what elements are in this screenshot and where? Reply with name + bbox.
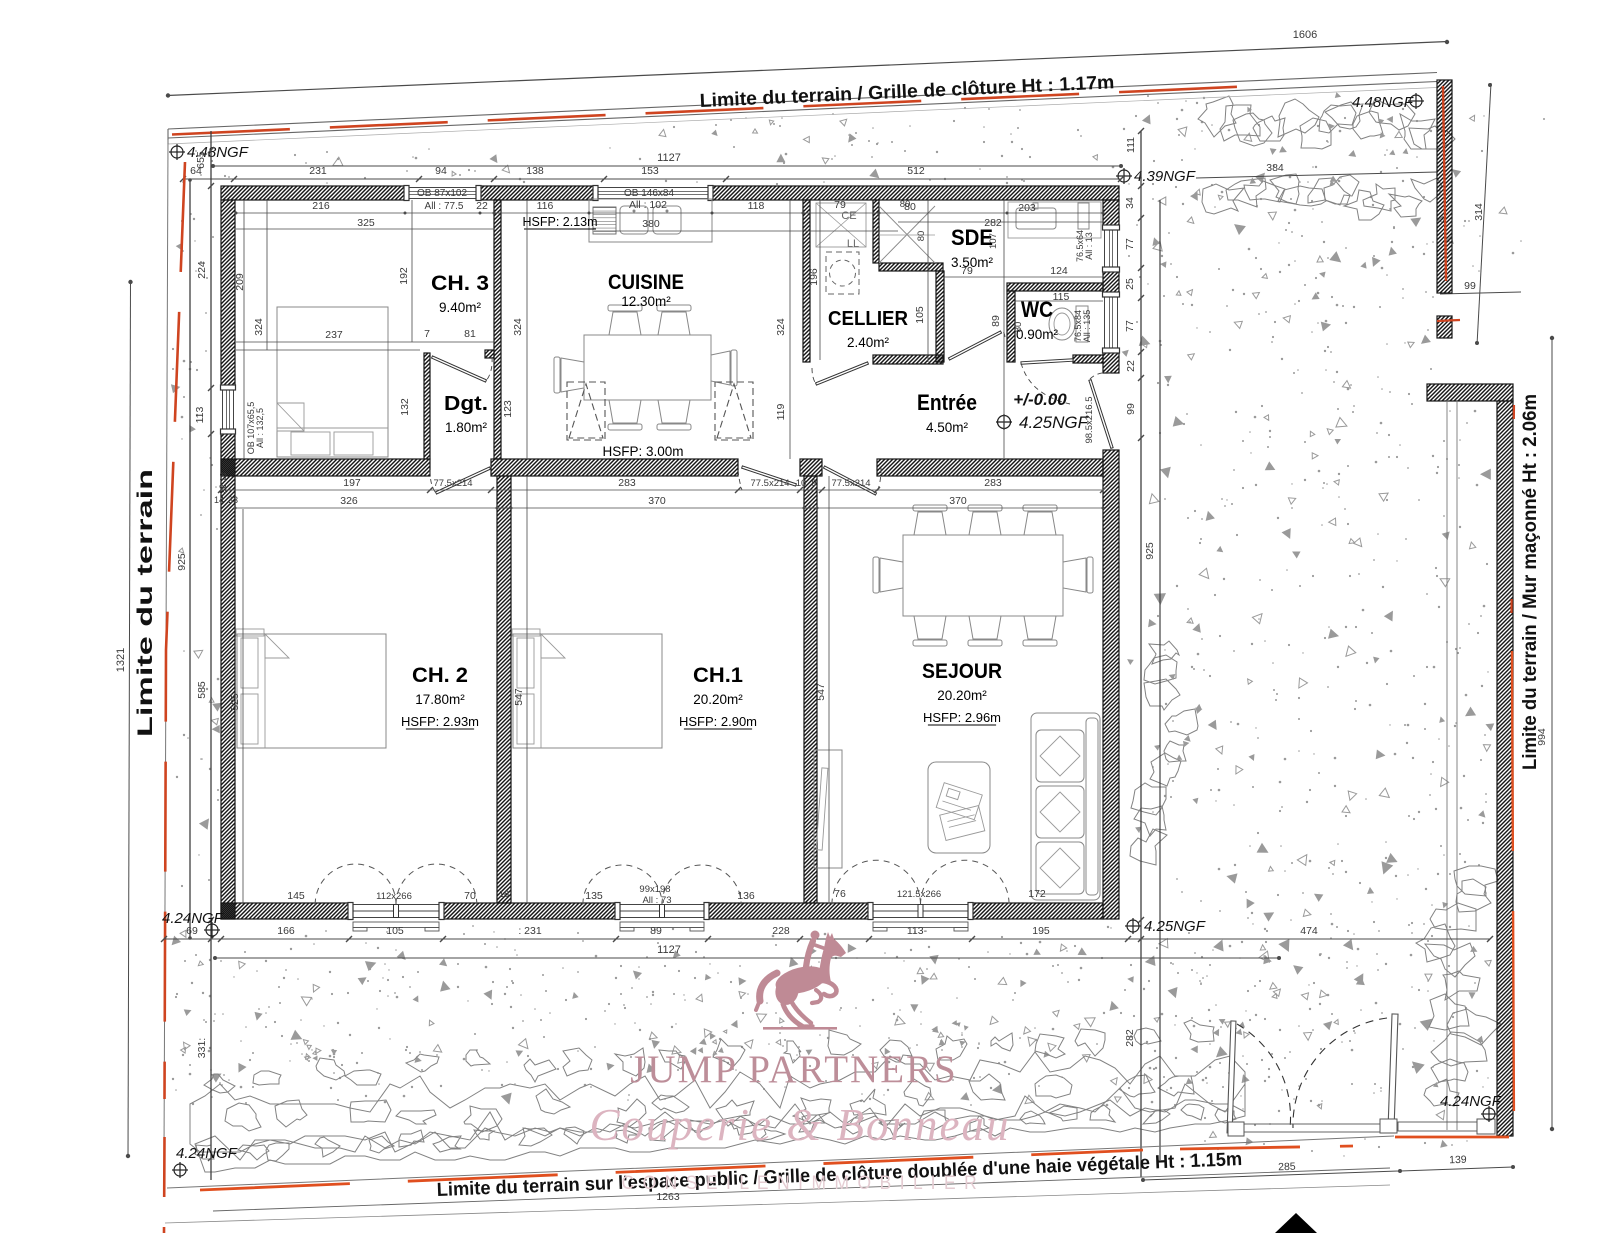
svg-text:324: 324 bbox=[775, 318, 787, 336]
svg-text:1321: 1321 bbox=[115, 648, 127, 672]
svg-text:111: 111 bbox=[1125, 137, 1137, 153]
svg-text:4.48NGF: 4.48NGF bbox=[1352, 94, 1414, 111]
svg-text:121.5x266: 121.5x266 bbox=[897, 889, 941, 900]
svg-text:655: 655 bbox=[195, 151, 207, 169]
svg-text:HSFP: 2.90m: HSFP: 2.90m bbox=[679, 714, 757, 729]
svg-text:All : 13: All : 13 bbox=[1084, 232, 1094, 260]
svg-text:2.40m²: 2.40m² bbox=[847, 335, 890, 350]
svg-text:77: 77 bbox=[1124, 320, 1136, 332]
svg-text:115: 115 bbox=[1053, 291, 1070, 303]
svg-text:HSFP: 2.96m: HSFP: 2.96m bbox=[923, 710, 1001, 725]
svg-text:124: 124 bbox=[1050, 265, 1068, 277]
svg-text:CE: CE bbox=[841, 210, 856, 222]
svg-text:1127: 1127 bbox=[657, 944, 681, 956]
svg-text:All : 73: All : 73 bbox=[642, 895, 671, 906]
svg-text:99: 99 bbox=[1464, 280, 1476, 292]
svg-text:153: 153 bbox=[641, 165, 659, 177]
svg-text:94: 94 bbox=[435, 165, 447, 177]
svg-text:228: 228 bbox=[772, 925, 790, 937]
svg-text:33: 33 bbox=[228, 495, 238, 505]
svg-text:70: 70 bbox=[464, 890, 476, 902]
svg-text:79: 79 bbox=[961, 265, 973, 277]
svg-text:282: 282 bbox=[984, 217, 1002, 229]
svg-text:: 231: : 231 bbox=[518, 925, 542, 937]
svg-text:195: 195 bbox=[1032, 925, 1050, 937]
svg-text:105: 105 bbox=[914, 306, 926, 324]
svg-text:76: 76 bbox=[834, 888, 846, 900]
svg-text:89: 89 bbox=[650, 925, 662, 937]
svg-text:HSFP: 3.00m: HSFP: 3.00m bbox=[602, 444, 683, 459]
svg-text:7: 7 bbox=[424, 328, 430, 340]
svg-text:18: 18 bbox=[499, 889, 509, 899]
svg-text:132: 132 bbox=[399, 398, 411, 416]
svg-text:314: 314 bbox=[1473, 203, 1485, 221]
svg-text:209: 209 bbox=[234, 273, 246, 291]
svg-text:547: 547 bbox=[513, 688, 525, 706]
svg-text:203: 203 bbox=[1018, 202, 1036, 214]
svg-text:80: 80 bbox=[916, 231, 927, 242]
svg-text:77.5x214: 77.5x214 bbox=[831, 478, 870, 489]
svg-text:525: 525 bbox=[229, 693, 241, 711]
svg-text:89: 89 bbox=[990, 315, 1002, 327]
svg-text:80: 80 bbox=[1013, 322, 1024, 333]
svg-text:+/-0.00: +/-0.00 bbox=[1013, 390, 1067, 409]
svg-text:22: 22 bbox=[476, 200, 488, 212]
svg-text:All : 102: All : 102 bbox=[629, 199, 667, 211]
svg-text:77.5x214: 77.5x214 bbox=[433, 478, 472, 489]
svg-text:Couperie & Bonneau: Couperie & Bonneau bbox=[590, 1100, 1011, 1150]
svg-text:283: 283 bbox=[618, 477, 636, 489]
svg-text:OB 87x102: OB 87x102 bbox=[417, 188, 467, 199]
svg-text:324: 324 bbox=[512, 318, 524, 336]
svg-text:99: 99 bbox=[1125, 403, 1137, 415]
svg-text:34: 34 bbox=[1124, 197, 1136, 209]
svg-text:4.39NGF: 4.39NGF bbox=[1134, 168, 1196, 185]
svg-text:18: 18 bbox=[218, 472, 228, 482]
svg-text:25: 25 bbox=[1124, 278, 1136, 290]
svg-text:138: 138 bbox=[526, 165, 544, 177]
svg-text:4.50m²: 4.50m² bbox=[926, 420, 969, 435]
svg-text:20.20m²: 20.20m² bbox=[937, 688, 987, 703]
svg-text:99x198: 99x198 bbox=[639, 884, 670, 895]
svg-text:113: 113 bbox=[194, 406, 206, 423]
svg-text:283: 283 bbox=[984, 477, 1002, 489]
svg-text:384: 384 bbox=[1266, 162, 1284, 174]
svg-text:CH. 3: CH. 3 bbox=[431, 272, 489, 295]
svg-text:All : 77.5: All : 77.5 bbox=[425, 201, 464, 212]
svg-text:9: 9 bbox=[811, 478, 816, 489]
svg-text:166: 166 bbox=[277, 925, 295, 937]
svg-text:135: 135 bbox=[585, 890, 603, 902]
svg-text:112x266: 112x266 bbox=[376, 891, 412, 902]
svg-text:925: 925 bbox=[176, 553, 188, 571]
svg-text:282: 282 bbox=[1124, 1029, 1136, 1047]
svg-text:118: 118 bbox=[748, 200, 765, 212]
svg-text:370: 370 bbox=[648, 495, 666, 507]
svg-text:C O N S E I L E N I M M O: C O N S E I L E N I M M O B I L I E R bbox=[622, 1173, 979, 1194]
svg-text:196: 196 bbox=[808, 268, 820, 286]
svg-text:CH. 2: CH. 2 bbox=[412, 664, 468, 687]
svg-text:77.5x214: 77.5x214 bbox=[750, 478, 789, 489]
svg-text:325: 325 bbox=[357, 217, 375, 229]
svg-text:17.80m²: 17.80m² bbox=[415, 692, 465, 707]
svg-text:119: 119 bbox=[775, 403, 787, 420]
svg-text:Limite du terrain: Limite du terrain bbox=[134, 469, 157, 737]
svg-text:370: 370 bbox=[949, 495, 967, 507]
svg-text:HSFP: 2.13m: HSFP: 2.13m bbox=[522, 215, 597, 229]
svg-text:10: 10 bbox=[796, 478, 807, 489]
svg-text:77: 77 bbox=[1124, 238, 1136, 250]
svg-text:20.20m²: 20.20m² bbox=[693, 692, 743, 707]
svg-text:4.24NGF: 4.24NGF bbox=[176, 1145, 238, 1162]
svg-text:81: 81 bbox=[464, 328, 476, 340]
svg-text:Limite du terrain / Mur maçonn: Limite du terrain / Mur maçonné Ht : 2.0… bbox=[1520, 394, 1541, 770]
svg-text:145: 145 bbox=[287, 890, 305, 902]
svg-text:22: 22 bbox=[1125, 360, 1137, 372]
svg-text:All : 135: All : 135 bbox=[1082, 310, 1092, 343]
svg-text:4.25NGF: 4.25NGF bbox=[1019, 413, 1090, 432]
svg-text:331:: 331: bbox=[196, 1038, 208, 1058]
svg-text:1.80m²: 1.80m² bbox=[445, 420, 488, 435]
svg-text:All : 132,5: All : 132,5 bbox=[255, 408, 265, 448]
svg-text:Dgt.: Dgt. bbox=[444, 393, 488, 415]
svg-text:CELLIER: CELLIER bbox=[828, 308, 909, 330]
svg-text:22: 22 bbox=[218, 484, 228, 494]
svg-text:1606: 1606 bbox=[1293, 29, 1317, 41]
svg-text:123: 123 bbox=[502, 400, 514, 418]
svg-text:237: 237 bbox=[325, 329, 343, 341]
svg-text:80: 80 bbox=[900, 199, 911, 210]
svg-text:139: 139 bbox=[1449, 1154, 1467, 1167]
svg-text:CH.1: CH.1 bbox=[693, 664, 743, 687]
svg-text:192: 192 bbox=[398, 267, 410, 285]
svg-text:136: 136 bbox=[737, 890, 755, 902]
svg-text:LL: LL bbox=[847, 238, 859, 250]
svg-text:14: 14 bbox=[214, 495, 224, 505]
svg-text:9.40m²: 9.40m² bbox=[439, 300, 482, 315]
svg-text:925: 925 bbox=[1144, 542, 1156, 560]
svg-text:231: 231 bbox=[309, 165, 327, 177]
svg-text:285: 285 bbox=[1278, 1161, 1296, 1174]
svg-text:326: 326 bbox=[340, 495, 358, 507]
svg-text:OB 146x84: OB 146x84 bbox=[624, 188, 674, 199]
svg-text:1127: 1127 bbox=[657, 152, 681, 164]
svg-text:172: 172 bbox=[1028, 888, 1046, 900]
svg-text:4.24NGF: 4.24NGF bbox=[1440, 1093, 1502, 1110]
svg-text:380: 380 bbox=[642, 218, 660, 230]
svg-text:107: 107 bbox=[988, 233, 999, 249]
svg-text:547: 547 bbox=[815, 683, 827, 701]
svg-text:324: 324 bbox=[253, 318, 265, 336]
svg-text:12.30m²: 12.30m² bbox=[621, 294, 671, 309]
svg-text:CUISINE: CUISINE bbox=[608, 271, 684, 294]
svg-text:116: 116 bbox=[537, 200, 554, 212]
svg-text:216: 216 bbox=[312, 200, 330, 212]
svg-text:197: 197 bbox=[343, 477, 361, 489]
svg-text:585: 585 bbox=[196, 681, 208, 699]
svg-text:SEJOUR: SEJOUR bbox=[922, 660, 1002, 683]
svg-text:4.25NGF: 4.25NGF bbox=[1144, 918, 1206, 935]
svg-text:113-: 113- bbox=[907, 925, 928, 937]
svg-text:HSFP: 2.93m: HSFP: 2.93m bbox=[401, 714, 479, 729]
svg-text:JUMP PARTNERS: JUMP PARTNERS bbox=[630, 1048, 957, 1091]
svg-text:512: 512 bbox=[907, 165, 925, 177]
svg-text:Entrée: Entrée bbox=[917, 390, 977, 415]
svg-text:105: 105 bbox=[386, 925, 404, 937]
svg-text:474: 474 bbox=[1300, 925, 1318, 937]
svg-text:224: 224 bbox=[196, 261, 208, 279]
